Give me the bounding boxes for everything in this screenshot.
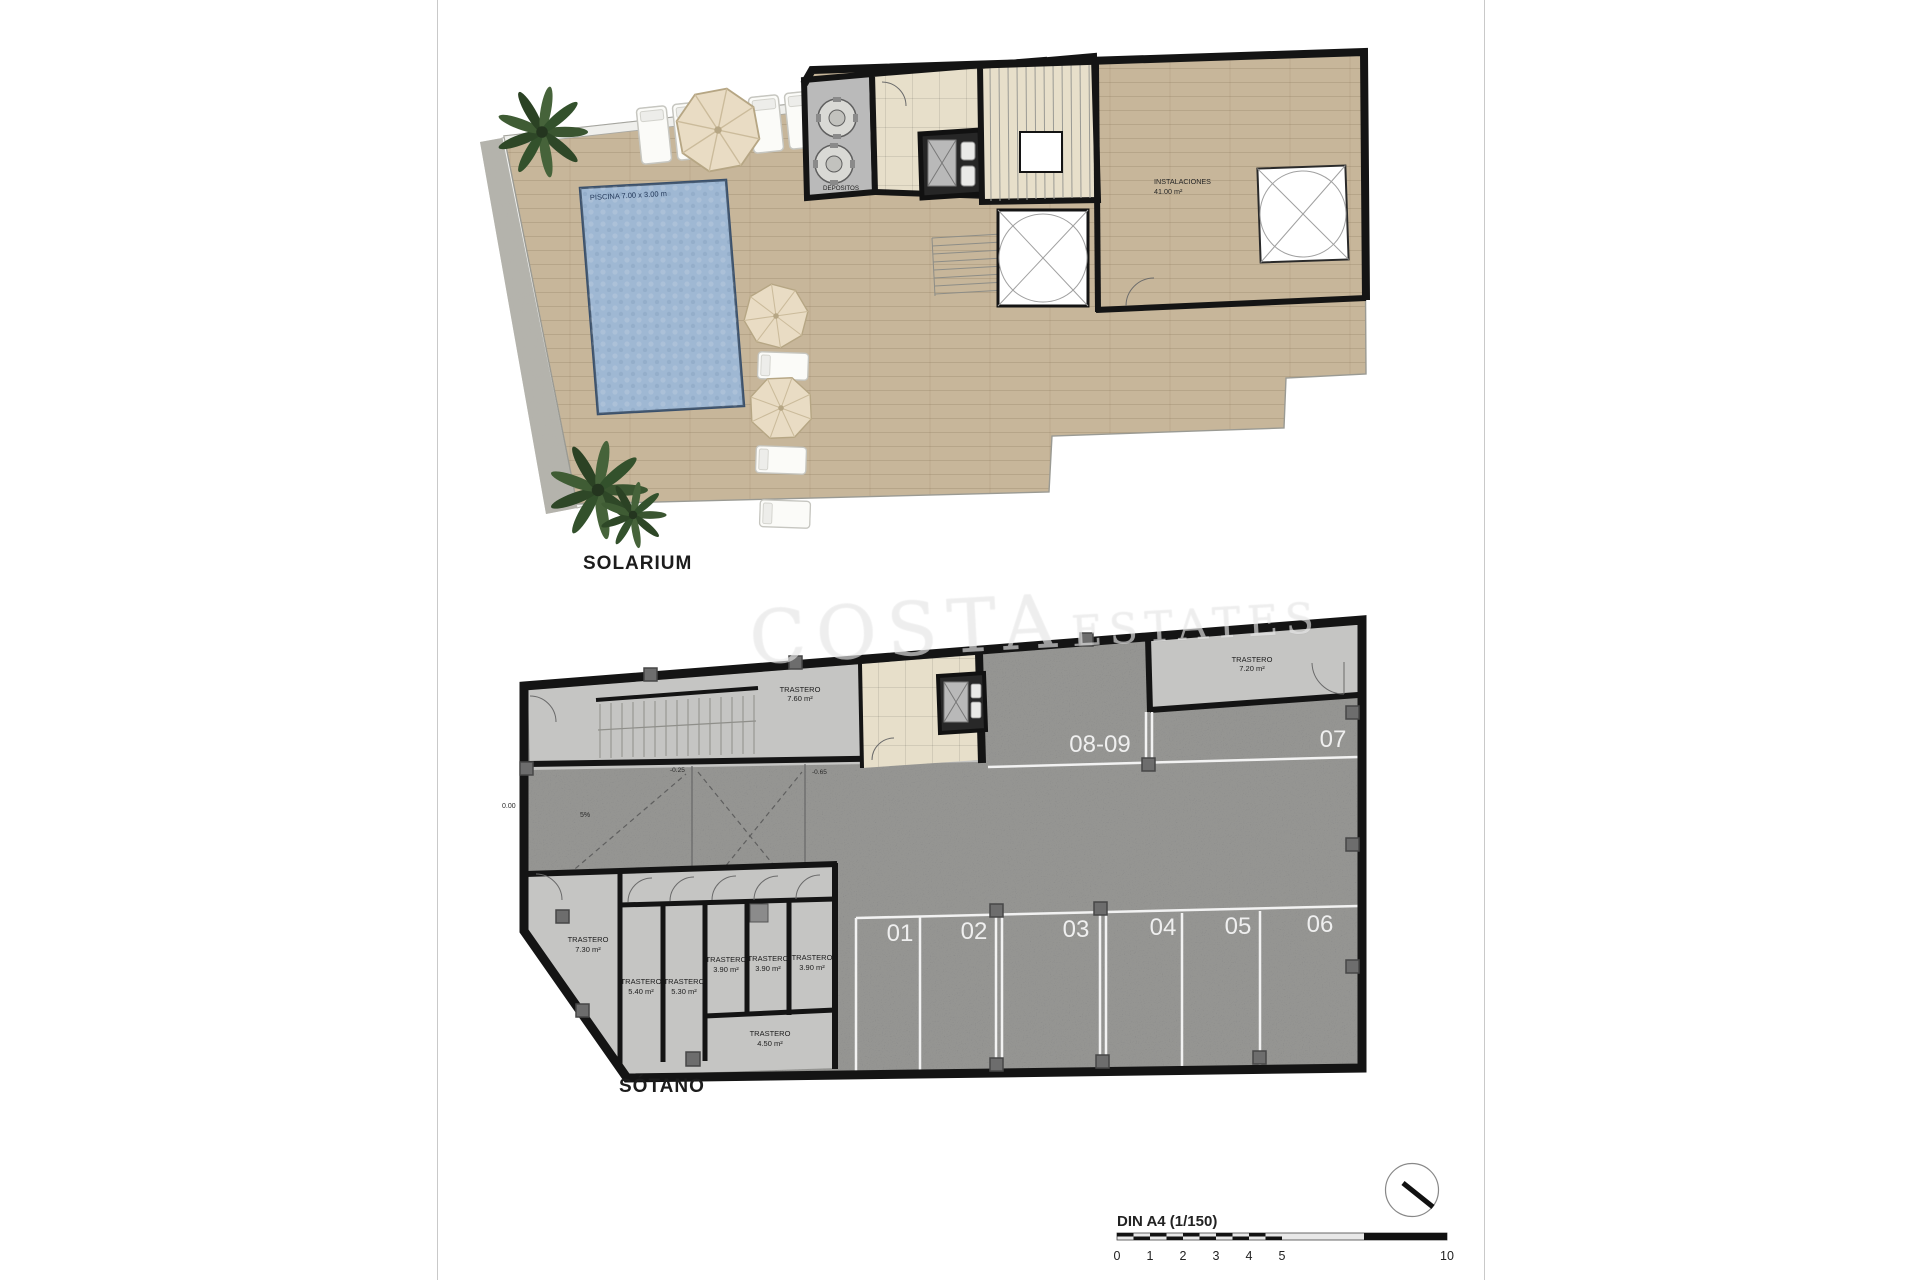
solarium-title: SOLARIUM — [583, 553, 692, 575]
sotano-plan: TRASTERO 7.60 m² TRASTERO 7. — [500, 600, 1400, 1100]
storage-label: TRASTERO — [1232, 655, 1273, 664]
sotano-title: SÓTANO — [619, 1076, 705, 1098]
scale-tick: 3 — [1213, 1249, 1220, 1263]
storage-area: 7.60 m² — [787, 694, 813, 703]
depositos-room: DEPOSITOS — [804, 74, 875, 198]
storage-label: TRASTERO — [792, 953, 833, 962]
storage-label: TRASTERO — [664, 977, 705, 986]
parking-space-label: 05 — [1225, 913, 1252, 940]
instalaciones-label: INSTALACIONES — [1154, 177, 1211, 186]
scale-tick: 5 — [1279, 1249, 1286, 1263]
level-zero: 0.00 — [502, 803, 516, 810]
skylight-void — [998, 210, 1088, 306]
sheet-format-label: DIN A4 (1/150) — [1117, 1213, 1217, 1230]
parking-space-label: 07 — [1320, 726, 1347, 753]
scale-tick: 2 — [1180, 1249, 1187, 1263]
storage-area: 7.30 m² — [575, 945, 601, 954]
storage-label: TRASTERO — [748, 954, 789, 963]
parking-space-label: 04 — [1150, 914, 1177, 941]
level-1: -0.25 — [670, 767, 685, 774]
scale-block: DIN A4 (1/150) 0 1 2 3 4 5 10 — [1100, 1150, 1460, 1270]
storage-area: 5.40 m² — [628, 987, 654, 996]
scale-tick: 4 — [1246, 1249, 1253, 1263]
duct — [750, 904, 768, 922]
storage-area: 3.90 m² — [755, 964, 781, 973]
depositos-label: DEPOSITOS — [823, 185, 859, 192]
parking-space-label: 03 — [1063, 916, 1090, 943]
parking-space-label: 08-09 — [1069, 731, 1130, 758]
storage-area: 7.20 m² — [1239, 664, 1265, 673]
storage-area: 3.90 m² — [799, 963, 825, 972]
stair-landing — [1020, 132, 1062, 172]
floorplan-sheet-page: PISCINA 7.00 x 3.00 m PISCINA 95.80 m² — [0, 0, 1920, 1280]
storage-label: TRASTERO — [780, 685, 821, 694]
storage-cluster: TRASTERO 7.30 m² TRASTERO 5.40 m² TRASTE… — [526, 863, 837, 1075]
storage-label: TRASTERO — [706, 955, 747, 964]
scale-tick: 1 — [1147, 1249, 1154, 1263]
scale-tick-labels: 0 1 2 3 4 5 10 — [1114, 1249, 1454, 1263]
storage-area: 3.90 m² — [713, 965, 739, 974]
storage-label: TRASTERO — [621, 977, 662, 986]
parking-space-label: 06 — [1307, 911, 1334, 938]
level-2: -0.65 — [812, 769, 827, 776]
slope-label: 5% — [580, 812, 590, 819]
stairwell — [980, 56, 1098, 202]
storage-area: 5.30 m² — [671, 987, 697, 996]
scale-tick: 0 — [1114, 1249, 1121, 1263]
elevator — [920, 130, 982, 198]
parking-space-label: 02 — [961, 918, 988, 945]
north-compass-icon — [1386, 1164, 1439, 1217]
storage-area: 4.50 m² — [757, 1039, 783, 1048]
parking-space-label: 01 — [887, 920, 914, 947]
storage-label: TRASTERO — [568, 935, 609, 944]
elevator — [938, 673, 986, 733]
solarium-plan: PISCINA 7.00 x 3.00 m PISCINA 95.80 m² — [480, 40, 1380, 560]
instalaciones-area: 41.00 m² — [1154, 187, 1183, 196]
scale-tick: 10 — [1440, 1249, 1454, 1263]
skylight-void — [1257, 165, 1348, 262]
scale-bar — [1117, 1233, 1447, 1240]
storage-label: TRASTERO — [750, 1029, 791, 1038]
